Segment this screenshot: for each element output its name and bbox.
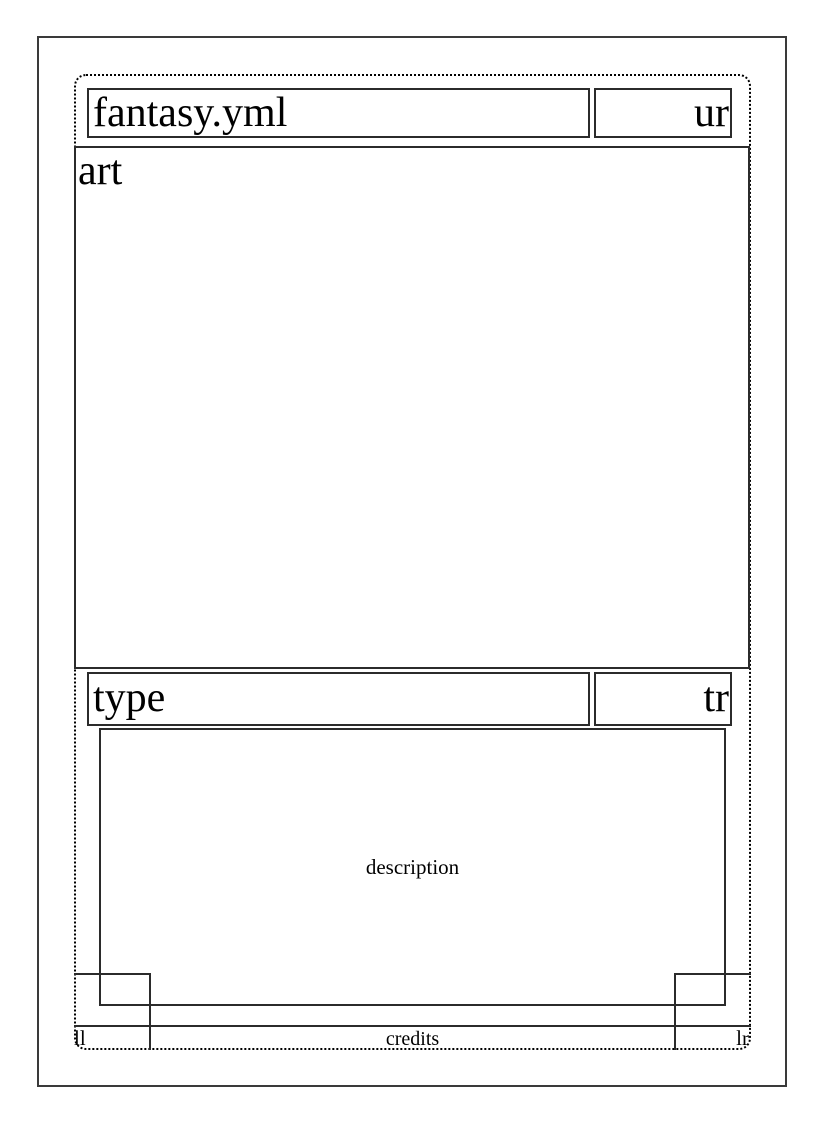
type-label: type	[89, 674, 588, 719]
type-right-label: tr	[596, 674, 730, 719]
credits-label: credits	[386, 1029, 439, 1049]
template-preview-page: { "meta": { "template_file_label": "fant…	[0, 0, 825, 1125]
description-label: description	[366, 855, 459, 880]
upper-right-zone-box: ur	[594, 88, 732, 138]
title-label: fantasy.yml	[89, 90, 588, 134]
art-zone-box: art	[74, 146, 750, 669]
art-label: art	[76, 148, 748, 192]
upper-right-label: ur	[596, 90, 730, 134]
type-right-zone-box: tr	[594, 672, 732, 726]
credits-zone-bar: credits	[74, 1025, 751, 1050]
description-zone-box: description	[99, 728, 726, 1006]
title-zone-box: fantasy.yml	[87, 88, 590, 138]
type-zone-box: type	[87, 672, 590, 726]
